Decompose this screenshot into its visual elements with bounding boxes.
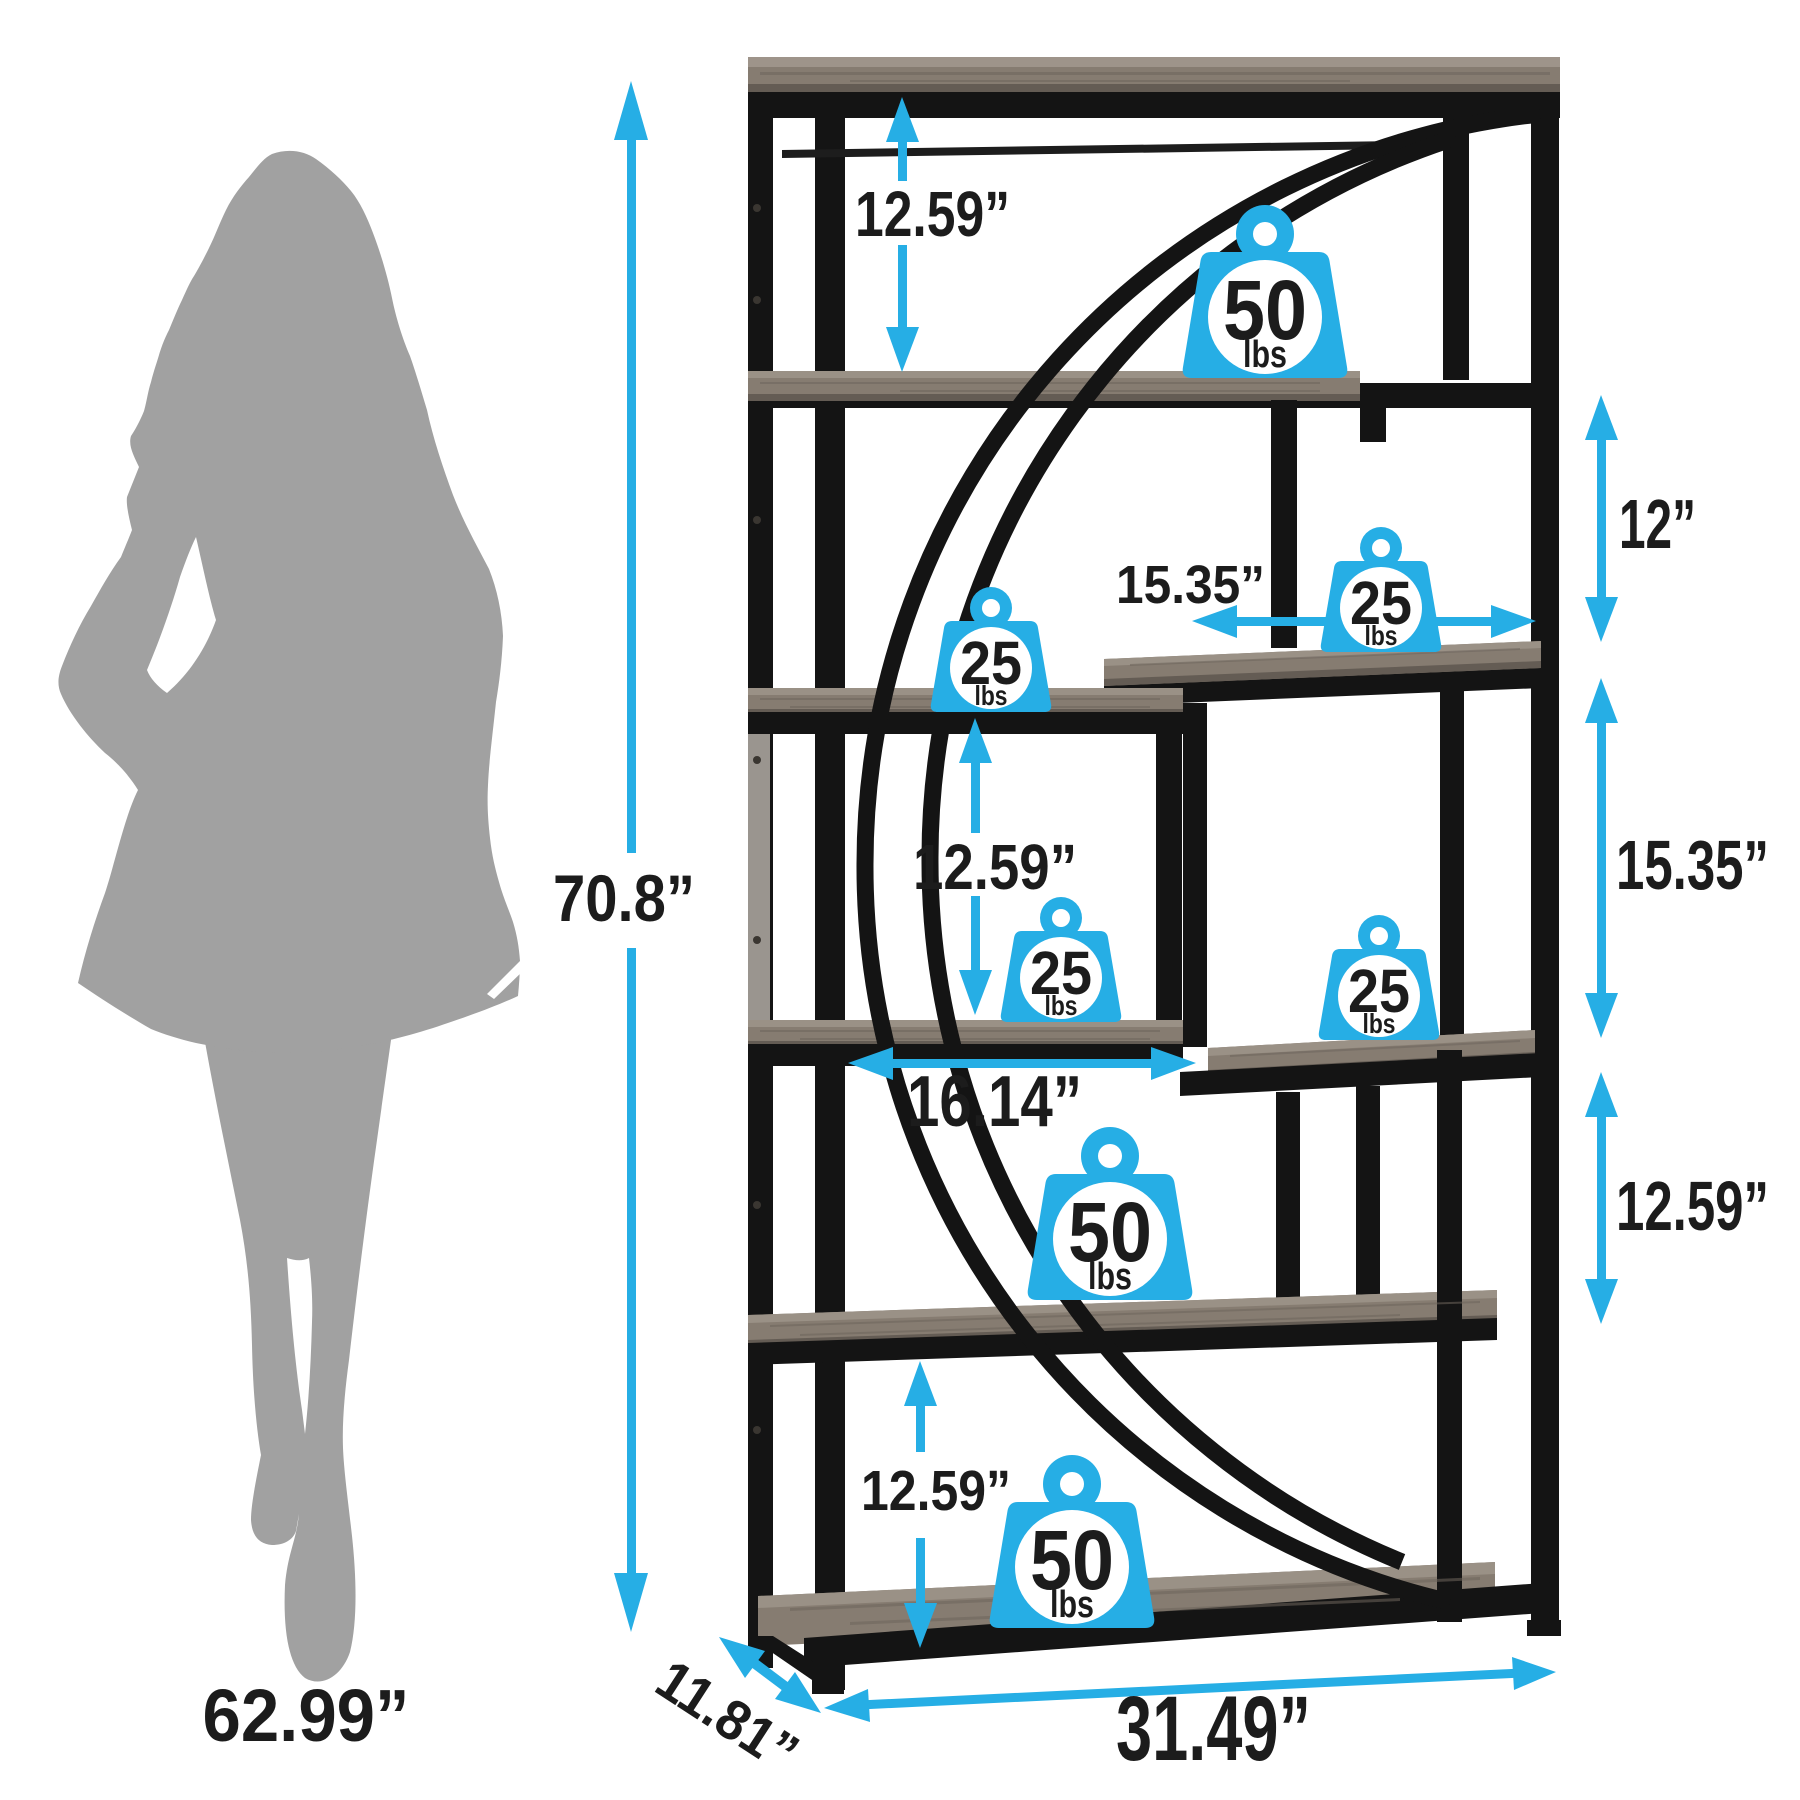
svg-text:12.59”: 12.59”: [855, 178, 1010, 250]
svg-text:12”: 12”: [1619, 485, 1696, 563]
svg-text:12.59”: 12.59”: [861, 1459, 1011, 1523]
svg-text:31.49”: 31.49”: [1116, 1678, 1311, 1780]
svg-text:15.35”: 15.35”: [1616, 826, 1769, 904]
svg-text:62.99”: 62.99”: [203, 1674, 410, 1757]
svg-text:12.59”: 12.59”: [1616, 1167, 1769, 1245]
svg-text:12.59”: 12.59”: [913, 831, 1077, 903]
svg-text:15.35”: 15.35”: [1116, 555, 1265, 615]
svg-text:70.8”: 70.8”: [553, 861, 695, 935]
svg-text:16.14”: 16.14”: [907, 1062, 1082, 1142]
